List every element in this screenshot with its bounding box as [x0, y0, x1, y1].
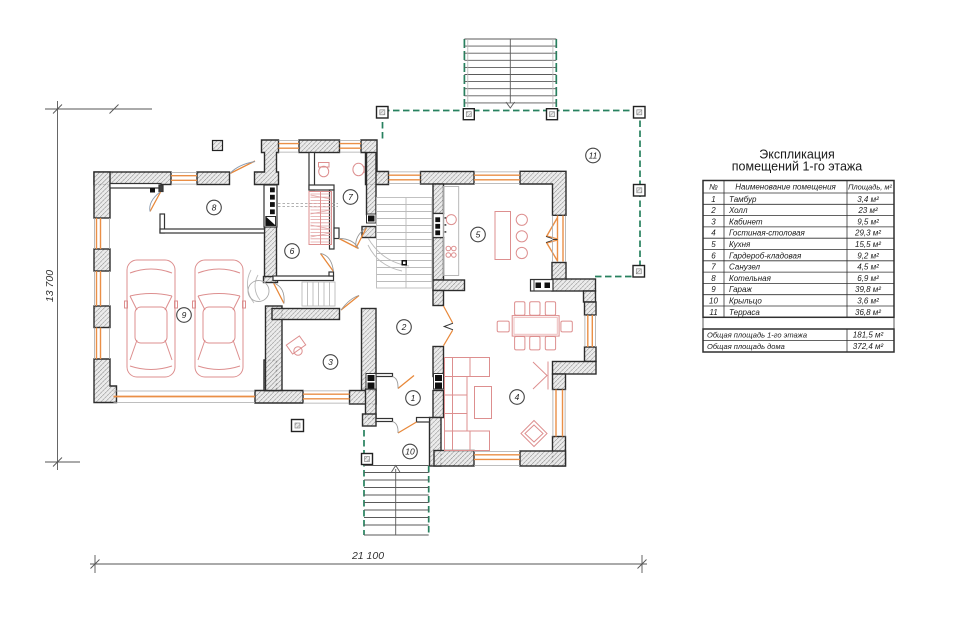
svg-text:1: 1 — [411, 393, 416, 403]
svg-text:Терраса: Терраса — [729, 308, 760, 317]
svg-text:8: 8 — [212, 203, 217, 213]
svg-text:29,3 м²: 29,3 м² — [854, 229, 881, 238]
svg-text:3,4 м²: 3,4 м² — [857, 195, 879, 204]
svg-text:4: 4 — [711, 229, 716, 238]
svg-text:372,4 м²: 372,4 м² — [853, 342, 884, 351]
svg-text:Крыльцо: Крыльцо — [729, 297, 762, 306]
svg-text:11: 11 — [709, 308, 717, 317]
svg-text:10: 10 — [405, 447, 415, 457]
svg-text:Наименование помещения: Наименование помещения — [735, 183, 836, 192]
svg-text:181,5 м²: 181,5 м² — [853, 331, 884, 340]
svg-text:5: 5 — [711, 240, 716, 249]
svg-text:6,9 м²: 6,9 м² — [857, 274, 879, 283]
svg-text:Гараж: Гараж — [729, 285, 752, 294]
svg-text:6: 6 — [711, 251, 716, 260]
svg-text:11: 11 — [589, 151, 598, 161]
svg-text:Площадь, м²: Площадь, м² — [848, 183, 892, 192]
svg-text:№: № — [709, 183, 718, 192]
svg-text:Санузел: Санузел — [729, 263, 761, 272]
svg-text:Общая площадь дома: Общая площадь дома — [707, 342, 785, 351]
svg-text:Кухня: Кухня — [729, 240, 751, 249]
svg-text:9: 9 — [711, 285, 716, 294]
svg-text:2: 2 — [710, 206, 716, 215]
svg-text:Котельная: Котельная — [729, 274, 772, 283]
svg-text:Общая площадь 1-го этажа: Общая площадь 1-го этажа — [707, 331, 807, 340]
svg-text:23 м²: 23 м² — [857, 206, 878, 215]
svg-text:9: 9 — [182, 310, 187, 320]
svg-text:4: 4 — [515, 392, 520, 402]
svg-text:15,5 м²: 15,5 м² — [855, 240, 881, 249]
svg-text:1: 1 — [711, 195, 715, 204]
svg-text:3,6 м²: 3,6 м² — [857, 297, 879, 306]
svg-text:4,5 м²: 4,5 м² — [857, 263, 879, 272]
svg-text:3: 3 — [328, 357, 333, 367]
svg-text:8: 8 — [711, 274, 716, 283]
svg-text:5: 5 — [476, 230, 481, 240]
svg-text:9,5 м²: 9,5 м² — [857, 217, 879, 226]
svg-text:Тамбур: Тамбур — [729, 195, 757, 204]
svg-text:36,8 м²: 36,8 м² — [855, 308, 881, 317]
svg-text:13 700: 13 700 — [44, 270, 56, 302]
svg-text:21 100: 21 100 — [351, 550, 384, 562]
svg-text:Холл: Холл — [728, 206, 748, 215]
svg-text:39,8 м²: 39,8 м² — [855, 285, 881, 294]
svg-text:9,2 м²: 9,2 м² — [857, 251, 879, 260]
svg-text:2: 2 — [401, 322, 407, 332]
svg-text:Гостиная-столовая: Гостиная-столовая — [729, 229, 806, 238]
svg-text:7: 7 — [711, 263, 716, 272]
svg-text:10: 10 — [709, 297, 718, 306]
svg-text:6: 6 — [290, 246, 295, 256]
svg-text:Гардероб-кладовая: Гардероб-кладовая — [729, 251, 802, 260]
svg-text:помещений 1-го этажа: помещений 1-го этажа — [732, 160, 863, 174]
svg-text:3: 3 — [711, 217, 716, 226]
svg-text:Кабинет: Кабинет — [729, 217, 763, 226]
svg-text:7: 7 — [348, 192, 353, 202]
